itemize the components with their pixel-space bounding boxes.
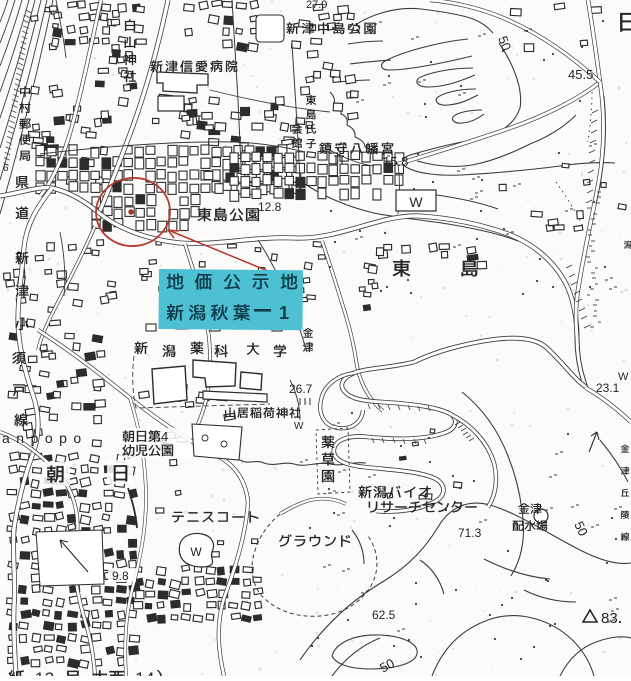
svg-text:anpopo: anpopo — [2, 430, 88, 446]
svg-text:W: W — [409, 194, 423, 210]
svg-text:1: 1 — [35, 669, 44, 676]
svg-text:1: 1 — [135, 669, 144, 676]
svg-text:9.8: 9.8 — [112, 569, 129, 583]
svg-text:W: W — [294, 421, 304, 432]
svg-text:4: 4 — [145, 669, 154, 676]
svg-text:12.8: 12.8 — [258, 200, 282, 214]
svg-text:83.: 83. — [601, 610, 622, 627]
svg-text:27.9: 27.9 — [306, 0, 327, 11]
svg-text:71.3: 71.3 — [458, 526, 482, 540]
svg-text:62.5: 62.5 — [372, 608, 396, 622]
svg-text:4: 4 — [161, 429, 168, 444]
svg-text:W: W — [618, 371, 629, 383]
svg-text:15.8: 15.8 — [383, 154, 408, 169]
svg-text:1: 1 — [279, 303, 289, 323]
svg-text:23.1: 23.1 — [596, 381, 620, 395]
svg-text:3: 3 — [45, 669, 54, 676]
svg-text:26.7: 26.7 — [289, 382, 313, 396]
svg-text:W: W — [190, 545, 202, 559]
svg-text:45.5: 45.5 — [568, 67, 593, 82]
svg-text:6: 6 — [3, 163, 9, 174]
